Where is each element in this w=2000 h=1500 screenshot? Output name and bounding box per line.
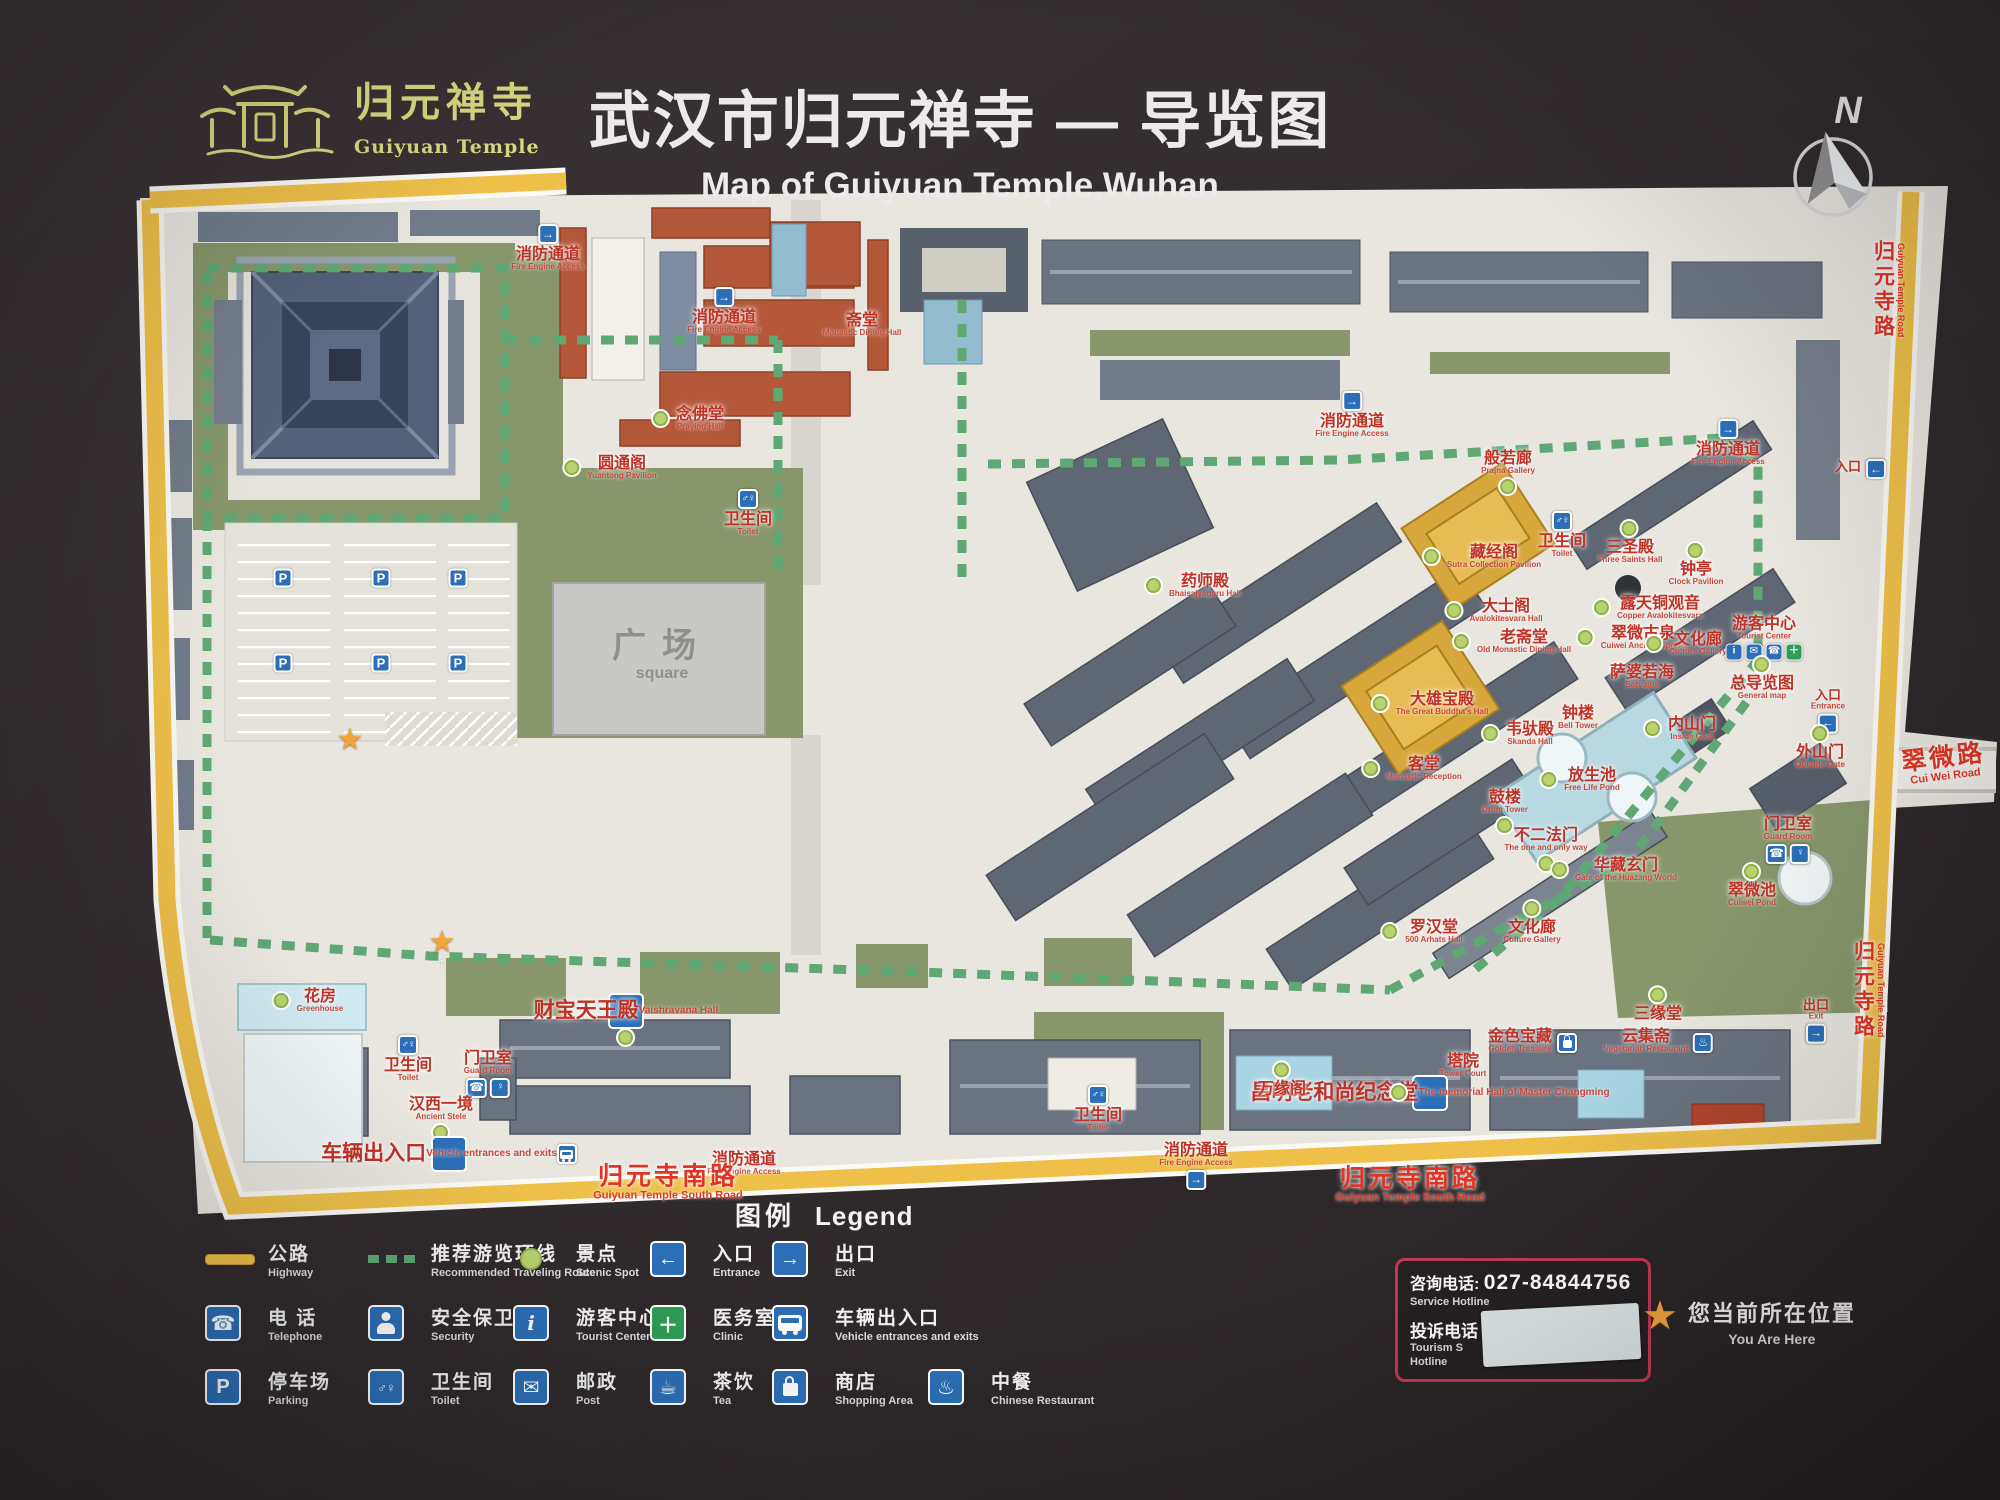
parking-area xyxy=(225,523,517,746)
compass: N xyxy=(1778,90,1888,230)
post-icon: ✉ xyxy=(513,1369,549,1405)
legend-item-clinic: ＋医务室Clinic xyxy=(650,1298,776,1348)
toilet-icon: ♂♀ xyxy=(368,1369,404,1405)
south-pool-1 xyxy=(1236,1056,1332,1110)
title-zh: 武汉市归元禅寺 — 导览图 xyxy=(520,70,1400,160)
page-title: 武汉市归元禅寺 — 导览图 Map of Guiyuan Temple,Wuha… xyxy=(520,70,1400,206)
temple-logo: 归元禅寺 Guiyuan Temple xyxy=(190,70,540,162)
legend-item-exit: →出口Exit xyxy=(772,1234,877,1284)
copper-guanyin-statue xyxy=(1615,575,1641,601)
legend-item-restaurant: ♨中餐Chinese Restaurant xyxy=(928,1362,1094,1412)
vehicle-icon xyxy=(772,1305,808,1341)
legend-item-post: ✉邮政Post xyxy=(513,1362,618,1412)
tourist-icon: i xyxy=(513,1305,549,1341)
legend-item-telephone: ☎电 话Telephone xyxy=(205,1298,322,1348)
restaurant-icon: ♨ xyxy=(928,1369,964,1405)
legend-item-security: 安全保卫Security xyxy=(368,1298,515,1348)
logo-name-zh: 归元禅寺 xyxy=(354,70,540,128)
pagoda-yuantong xyxy=(214,260,464,472)
logo-name-en: Guiyuan Temple xyxy=(354,136,540,158)
shopping-icon xyxy=(772,1369,808,1405)
spot-icon xyxy=(520,1248,542,1270)
highway-icon xyxy=(205,1254,255,1265)
you-are-here-star-icon: ★ xyxy=(1642,1296,1678,1336)
title-en: Map of Guiyuan Temple,Wuhan xyxy=(520,166,1400,206)
security-icon xyxy=(368,1305,404,1341)
legend: 公路Highway☎电 话TelephoneP停车场Parking推荐游览环线R… xyxy=(0,1234,2000,1464)
compass-needle-icon xyxy=(1785,125,1881,225)
square-plaza xyxy=(553,583,765,735)
entrance-icon: ← xyxy=(650,1241,686,1277)
hotline-box: 咨询电话: 027-84844756 Service Hotline 投诉电话 … xyxy=(1395,1258,1651,1382)
clinic-icon: ＋ xyxy=(650,1305,686,1341)
legend-item-shopping: 商店Shopping Area xyxy=(772,1362,913,1412)
legend-item-toilet: ♂♀卫生间Toilet xyxy=(368,1362,494,1412)
tea-icon: ☕ xyxy=(650,1369,686,1405)
legend-item-highway: 公路Highway xyxy=(205,1234,313,1284)
you-are-here-zh: 您当前所在位置 xyxy=(1688,1296,1856,1328)
south-toilet-building xyxy=(1048,1058,1136,1110)
west-pond xyxy=(244,1034,362,1162)
south-pool-2 xyxy=(1578,1070,1644,1118)
legend-item-tea: ☕茶饮Tea xyxy=(650,1362,755,1412)
you-are-here: ★ 您当前所在位置 You Are Here xyxy=(1642,1296,1856,1347)
telephone-icon: ☎ xyxy=(205,1305,241,1341)
exit-icon: → xyxy=(772,1241,808,1277)
cuiwei-pond xyxy=(1779,852,1831,904)
legend-title-zh: 图例 xyxy=(735,1201,795,1231)
legend-item-vehicle: 车辆出入口Vehicle entrances and exits xyxy=(772,1298,979,1348)
legend-item-tourist: i游客中心Tourist Center xyxy=(513,1298,660,1348)
service-hotline-line: 咨询电话: 027-84844756 xyxy=(1410,1270,1636,1295)
legend-item-entrance: ←入口Entrance xyxy=(650,1234,760,1284)
pool-north xyxy=(772,224,806,296)
bluegray-hall xyxy=(660,252,696,370)
covering-sticker xyxy=(1481,1303,1642,1367)
legend-item-spot: 景点Scenic Spot xyxy=(513,1234,639,1284)
legend-title-en: Legend xyxy=(815,1201,913,1231)
temple-map-board: 归元禅寺 Guiyuan Temple 武汉市归元禅寺 — 导览图 Map of… xyxy=(0,0,2000,1500)
service-hotline-number: 027-84844756 xyxy=(1484,1271,1631,1294)
greenhouse-building xyxy=(238,984,366,1030)
white-hall xyxy=(592,238,644,380)
you-are-here-en: You Are Here xyxy=(1688,1331,1856,1347)
route-icon xyxy=(368,1255,420,1263)
legend-item-parking: P停车场Parking xyxy=(205,1362,331,1412)
parking-icon: P xyxy=(205,1369,241,1405)
temple-gate-icon xyxy=(190,70,340,162)
legend-title: 图例Legend xyxy=(735,1196,913,1233)
